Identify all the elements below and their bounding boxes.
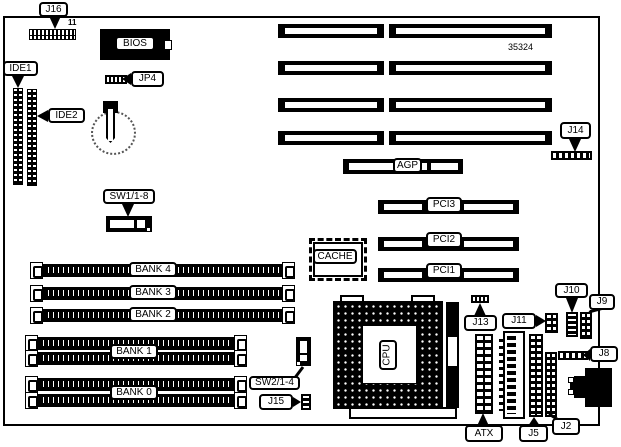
label-j10: J10 (555, 283, 588, 298)
label-pci2: PCI2 (426, 232, 462, 248)
label-j2: J2 (552, 418, 580, 435)
label-j9: J9 (589, 294, 615, 310)
label-bank2: BANK 2 (129, 307, 177, 322)
label-bank0: BANK 0 (110, 385, 158, 400)
label-bank4: BANK 4 (129, 262, 177, 277)
part-number: 35324 (508, 43, 533, 52)
label-j14: J14 (560, 122, 591, 139)
label-agp: AGP (393, 158, 422, 173)
label-ide2: IDE2 (48, 108, 85, 123)
label-sw2: SW2/1-4 (249, 376, 300, 390)
label-bank3: BANK 3 (129, 285, 177, 300)
label-bank1: BANK 1 (110, 344, 158, 359)
label-j16: J16 (39, 2, 68, 17)
label-j13: J13 (464, 315, 497, 331)
label-cache: CACHE (313, 249, 357, 264)
label-atx: ATX (465, 425, 503, 442)
pin-11-marker: 11 (68, 19, 76, 27)
label-j11: J11 (502, 313, 536, 329)
label-j15: J15 (259, 394, 293, 410)
label-pci1: PCI1 (426, 263, 462, 279)
label-ide1: IDE1 (3, 61, 38, 76)
label-pci3: PCI3 (426, 197, 462, 213)
label-jp4: JP4 (131, 71, 164, 87)
label-bios: BIOS (115, 36, 155, 51)
label-sw1: SW1/1-8 (103, 189, 155, 204)
label-j8: J8 (590, 346, 618, 362)
motherboard-diagram: 11 J16 BIOS IDE1 IDE2 JP4 SW1/1-8 35324 … (0, 0, 621, 447)
label-j5: J5 (519, 425, 548, 442)
label-cpu: CPU (379, 340, 397, 370)
callout-arrows (0, 0, 621, 447)
